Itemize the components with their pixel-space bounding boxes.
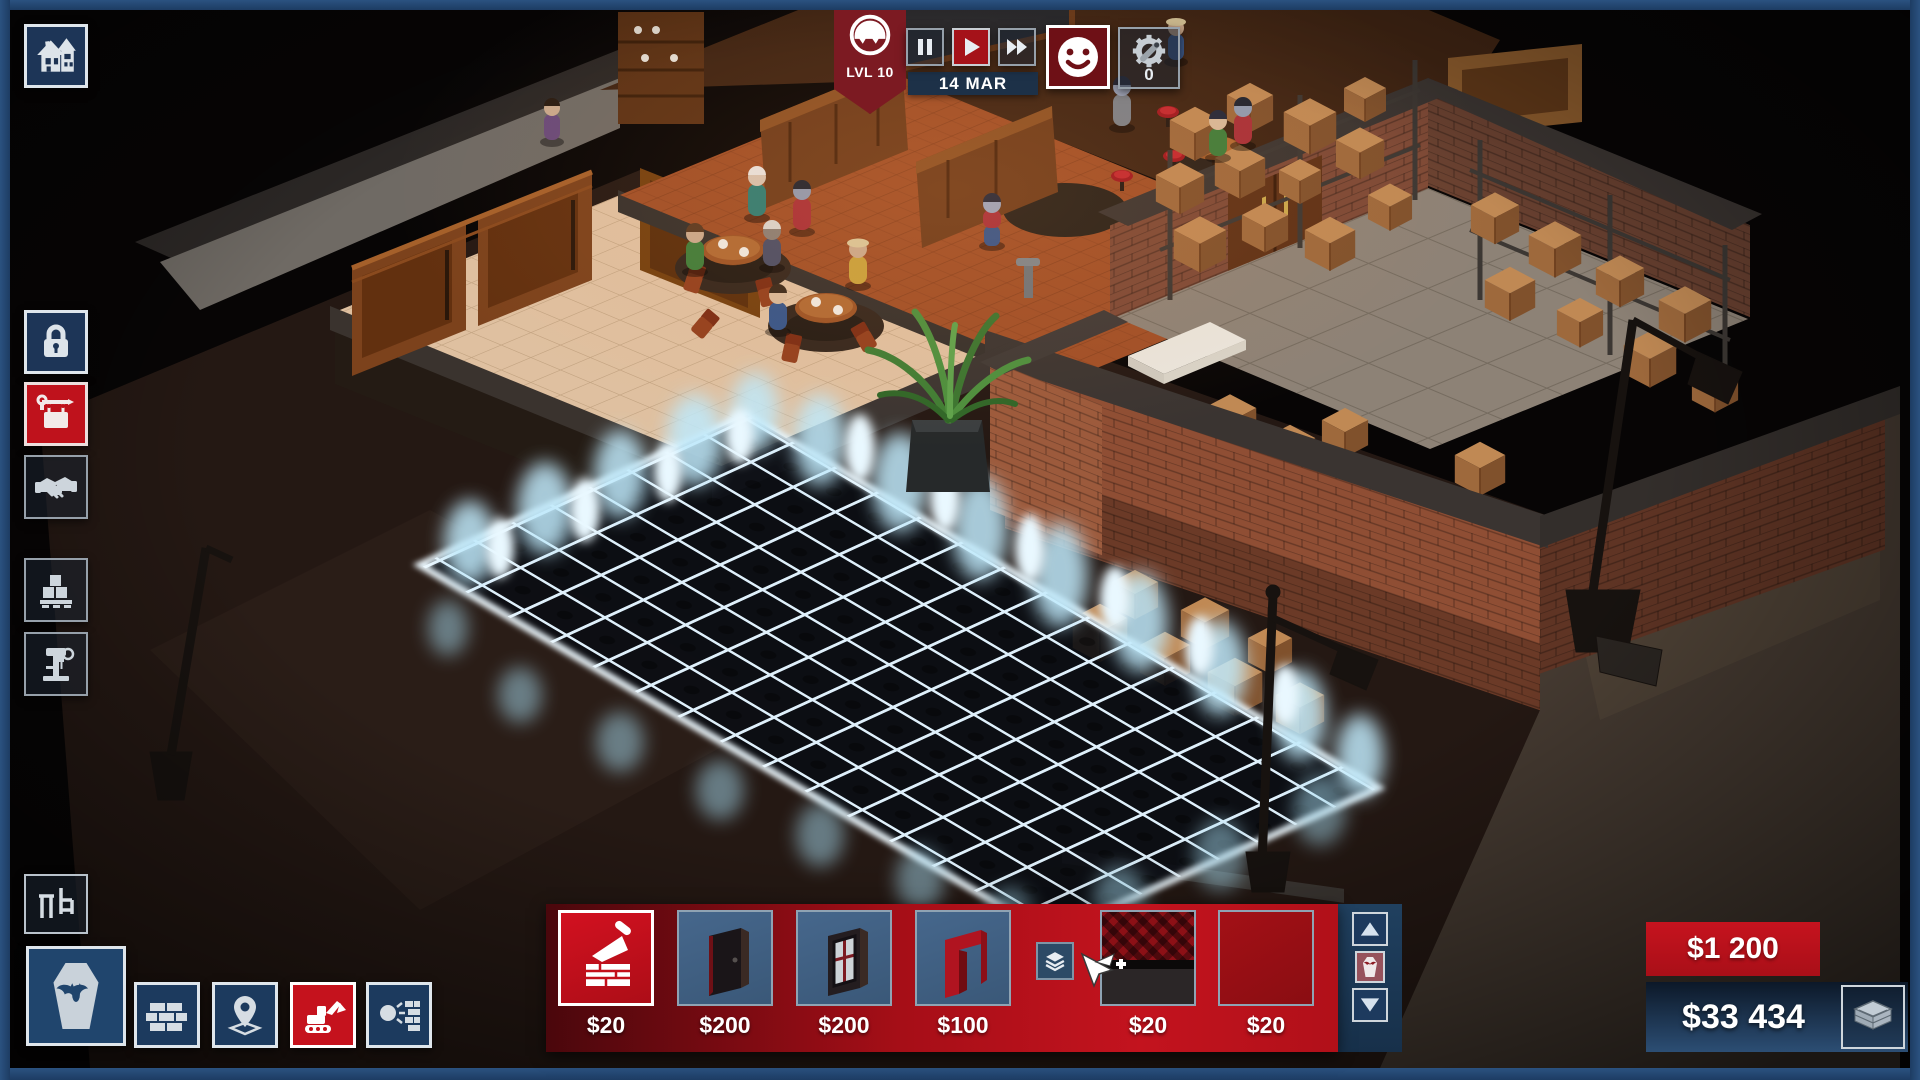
price-label: $200 — [677, 1012, 773, 1039]
toolbar-sign-button[interactable] — [24, 382, 88, 446]
undertaker-face-icon — [843, 10, 897, 62]
mood-button[interactable] — [1046, 25, 1110, 89]
dark-door-icon — [685, 918, 765, 998]
palette-item-wall[interactable] — [558, 910, 654, 1006]
date-display: 14 MAR — [908, 72, 1038, 95]
wrecking-ball-icon — [375, 993, 423, 1037]
map-pin-icon — [223, 992, 267, 1038]
excavator-icon — [299, 993, 347, 1037]
pause-button[interactable] — [906, 28, 944, 66]
daily-earnings-value: $1 200 — [1687, 932, 1779, 966]
price-label: $20 — [1218, 1012, 1314, 1039]
build-walls-button[interactable] — [134, 982, 200, 1048]
coffin-mini-icon — [1362, 956, 1378, 978]
layers-button[interactable] — [1036, 942, 1074, 980]
price-label: $20 — [558, 1012, 654, 1039]
arrow-up-icon — [1360, 921, 1380, 937]
smiley-face-icon — [1056, 35, 1100, 79]
palette-scroll-column — [1338, 904, 1402, 1052]
palette-scroll-up[interactable] — [1352, 912, 1388, 946]
balance-value: $33 434 — [1646, 998, 1841, 1037]
pause-icon — [915, 37, 935, 57]
toolbar-deals-button[interactable] — [24, 455, 88, 519]
palette-item-red-floor[interactable] — [1218, 910, 1314, 1006]
palette-item-door-dark[interactable] — [677, 910, 773, 1006]
level-label: LVL 10 — [846, 64, 894, 80]
demolish-button[interactable] — [366, 982, 432, 1048]
balance-bar: $33 434 — [1646, 982, 1908, 1052]
palette-item-door-window[interactable] — [796, 910, 892, 1006]
banknotes-icon — [1851, 997, 1895, 1037]
furniture-button[interactable] — [24, 874, 88, 934]
drill-press-icon — [34, 642, 78, 686]
coffin-bat-icon — [43, 958, 109, 1034]
fast-forward-button[interactable] — [998, 28, 1036, 66]
toolbar-lock-button[interactable] — [24, 310, 88, 374]
coffin-window-door-icon — [804, 918, 884, 998]
gear-wrench-icon — [1131, 34, 1167, 68]
palette-item-doorframe[interactable] — [915, 910, 1011, 1006]
price-label: $20 — [1100, 1012, 1196, 1039]
checkered-carpet-icon — [1102, 912, 1194, 1004]
pallet-boxes-icon — [34, 568, 78, 612]
home-button[interactable] — [24, 24, 88, 88]
palette-scroll-down[interactable] — [1352, 988, 1388, 1022]
price-label: $200 — [796, 1012, 892, 1039]
toolbar-workshop-button[interactable] — [24, 632, 88, 696]
coffin-button[interactable] — [26, 946, 126, 1046]
price-label: $100 — [915, 1012, 1011, 1039]
red-floor-icon — [1220, 912, 1312, 1004]
fast-forward-icon — [1005, 37, 1029, 57]
toolbar-stock-button[interactable] — [24, 558, 88, 622]
frame-bottom — [0, 1068, 1920, 1080]
chair-table-icon — [34, 884, 78, 924]
construction-button[interactable] — [290, 982, 356, 1048]
alerts-count: 0 — [1144, 66, 1153, 83]
arrow-down-icon — [1360, 997, 1380, 1013]
bricks-icon — [144, 995, 190, 1035]
frame-top — [0, 0, 1920, 10]
build-palette: $20 $200 $200 $100 $20 $20 — [546, 904, 1338, 1052]
haunted-house-icon — [33, 33, 79, 79]
locations-button[interactable] — [212, 982, 278, 1048]
finances-button[interactable] — [1841, 985, 1905, 1049]
hanging-sign-icon — [34, 392, 78, 436]
play-icon — [960, 36, 982, 58]
handshake-icon — [33, 464, 79, 510]
red-doorframe-icon — [923, 918, 1003, 998]
alerts-button[interactable]: 0 — [1118, 27, 1180, 89]
trowel-bricks-icon — [566, 918, 646, 998]
layers-icon — [1042, 948, 1068, 974]
daily-earnings: $1 200 — [1646, 922, 1820, 976]
palette-item-carpet[interactable] — [1100, 910, 1196, 1006]
frame-left — [0, 0, 10, 1080]
play-button[interactable] — [952, 28, 990, 66]
palette-category-coffin[interactable] — [1355, 951, 1385, 983]
frame-right — [1910, 0, 1920, 1080]
game-screen: LVL 10 14 MAR 0 — [0, 0, 1920, 1080]
padlock-icon — [34, 320, 78, 364]
date-label: 14 MAR — [939, 74, 1007, 94]
